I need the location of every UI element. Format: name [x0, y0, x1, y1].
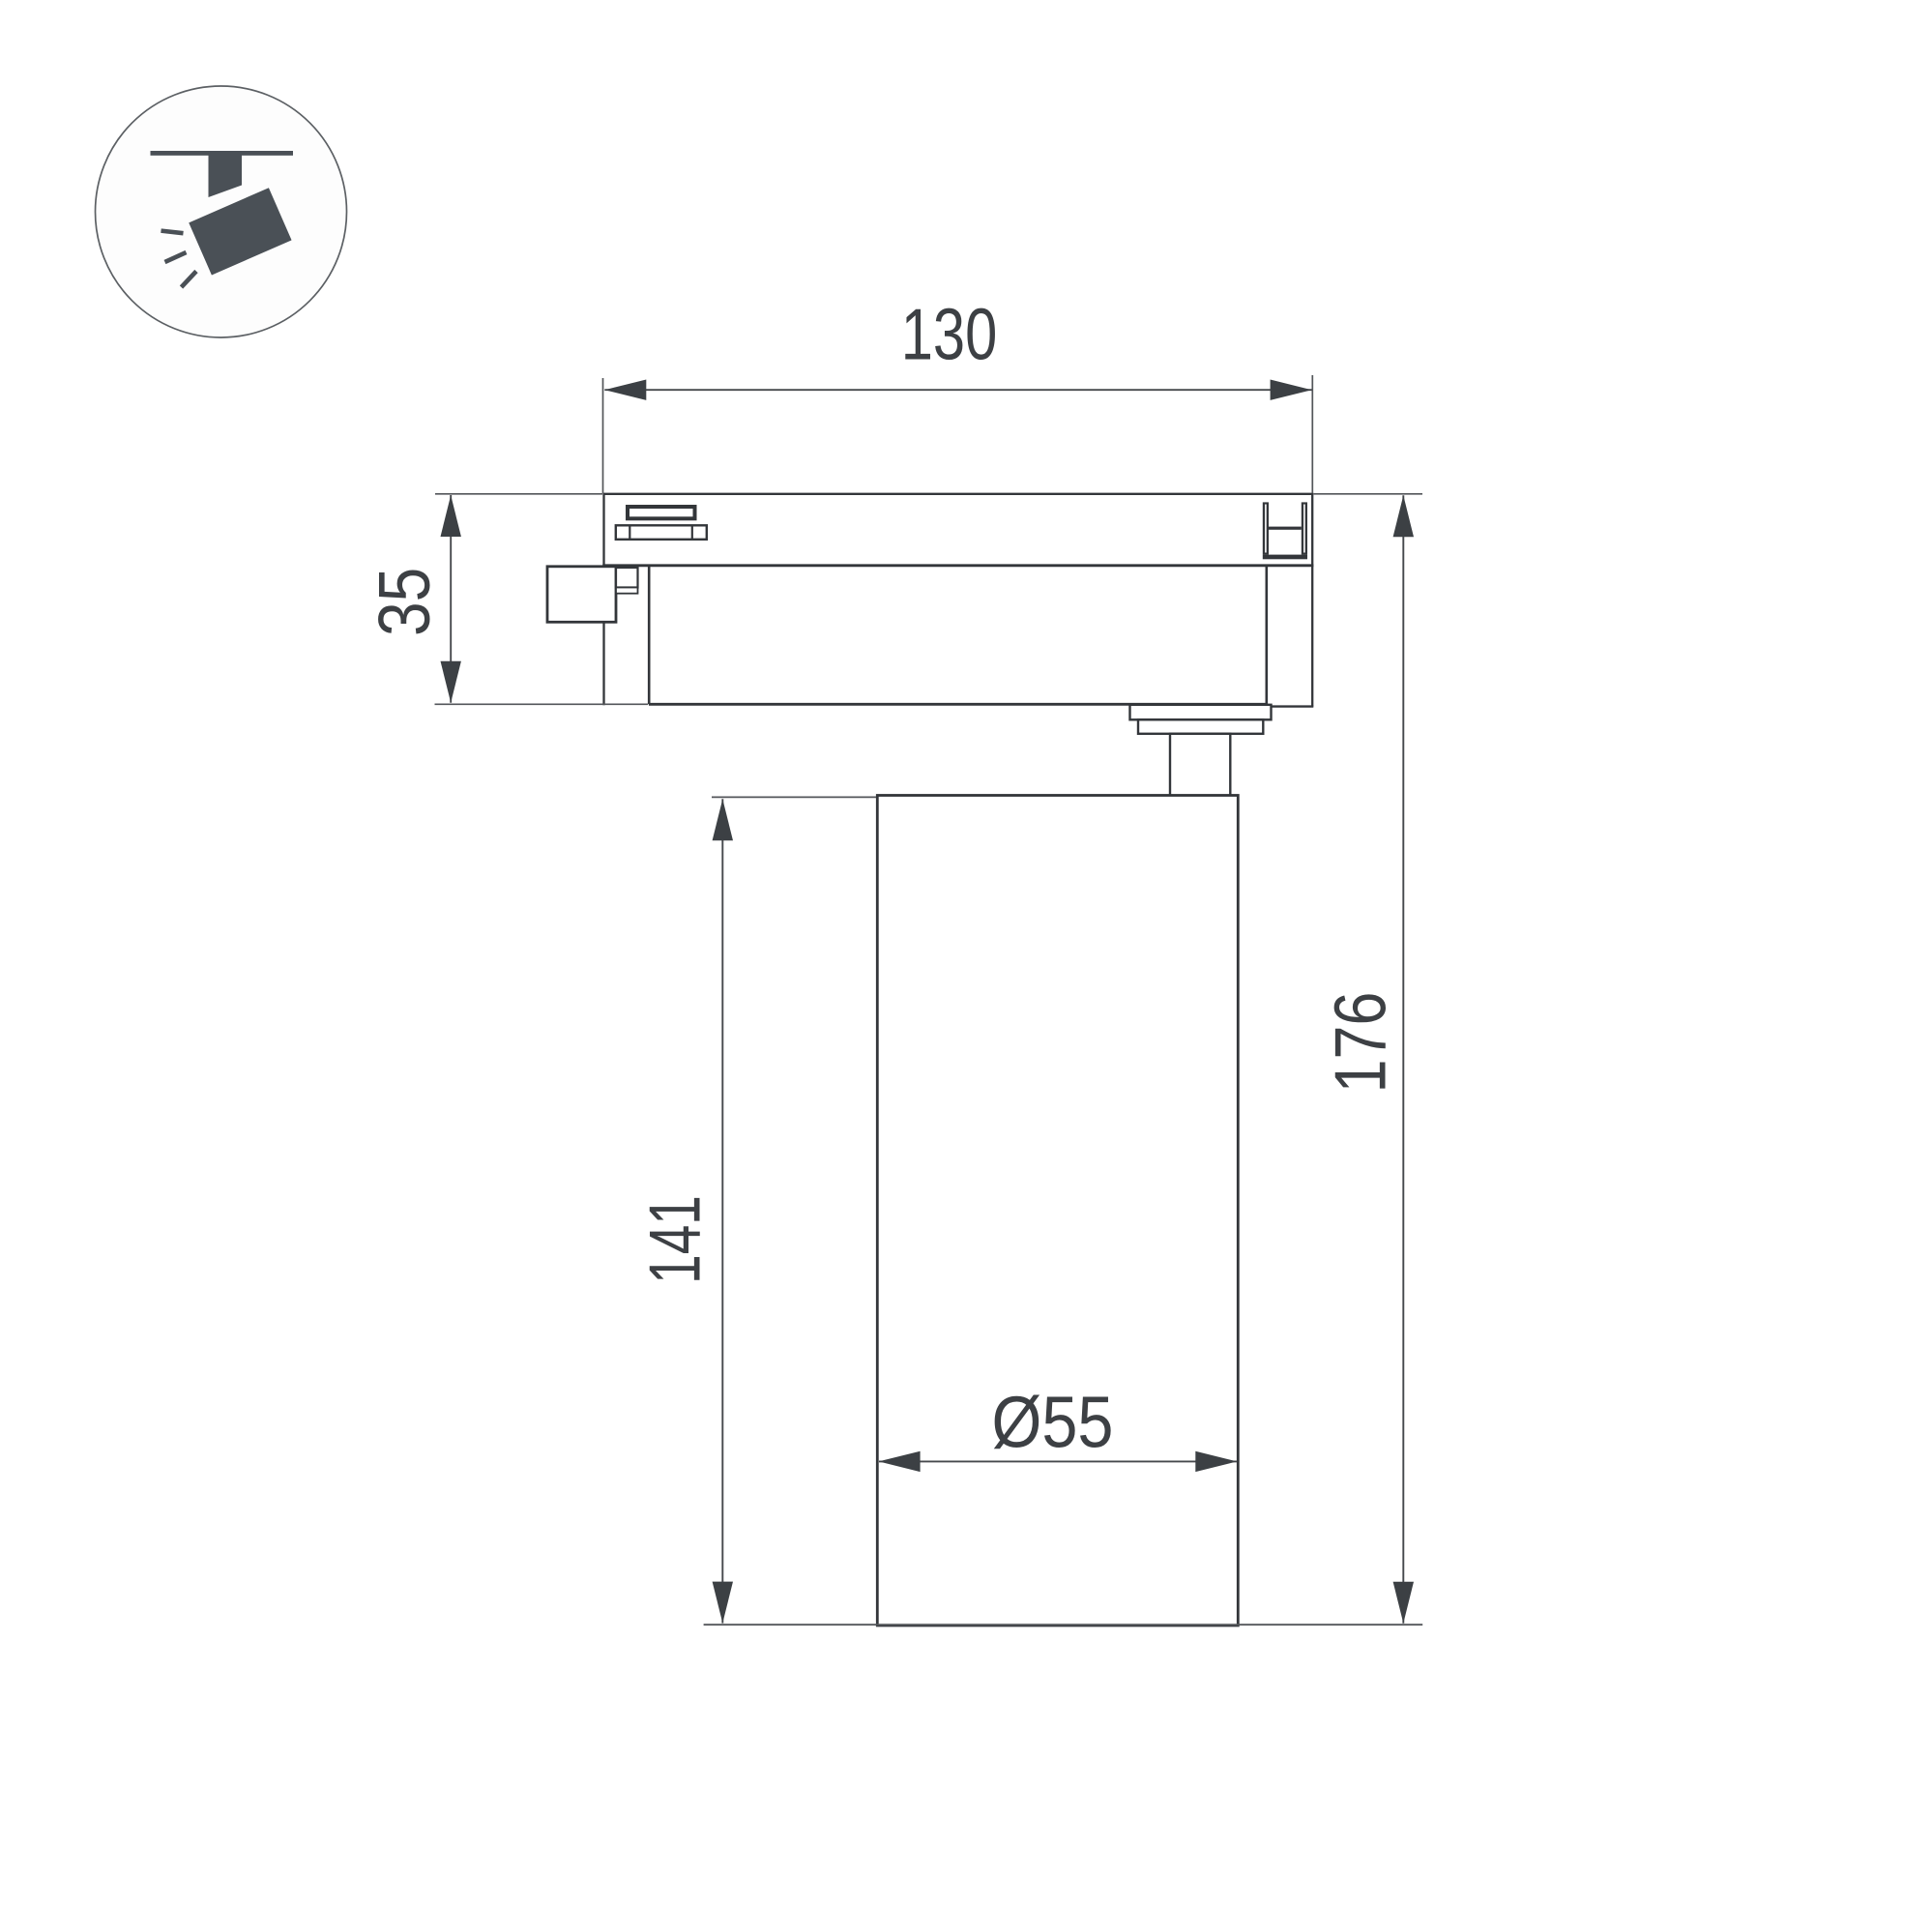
- svg-text:141: 141: [633, 1195, 715, 1284]
- svg-text:Ø55: Ø55: [992, 1383, 1114, 1463]
- svg-text:35: 35: [364, 568, 445, 636]
- svg-text:176: 176: [1319, 992, 1401, 1094]
- svg-text:130: 130: [901, 295, 997, 375]
